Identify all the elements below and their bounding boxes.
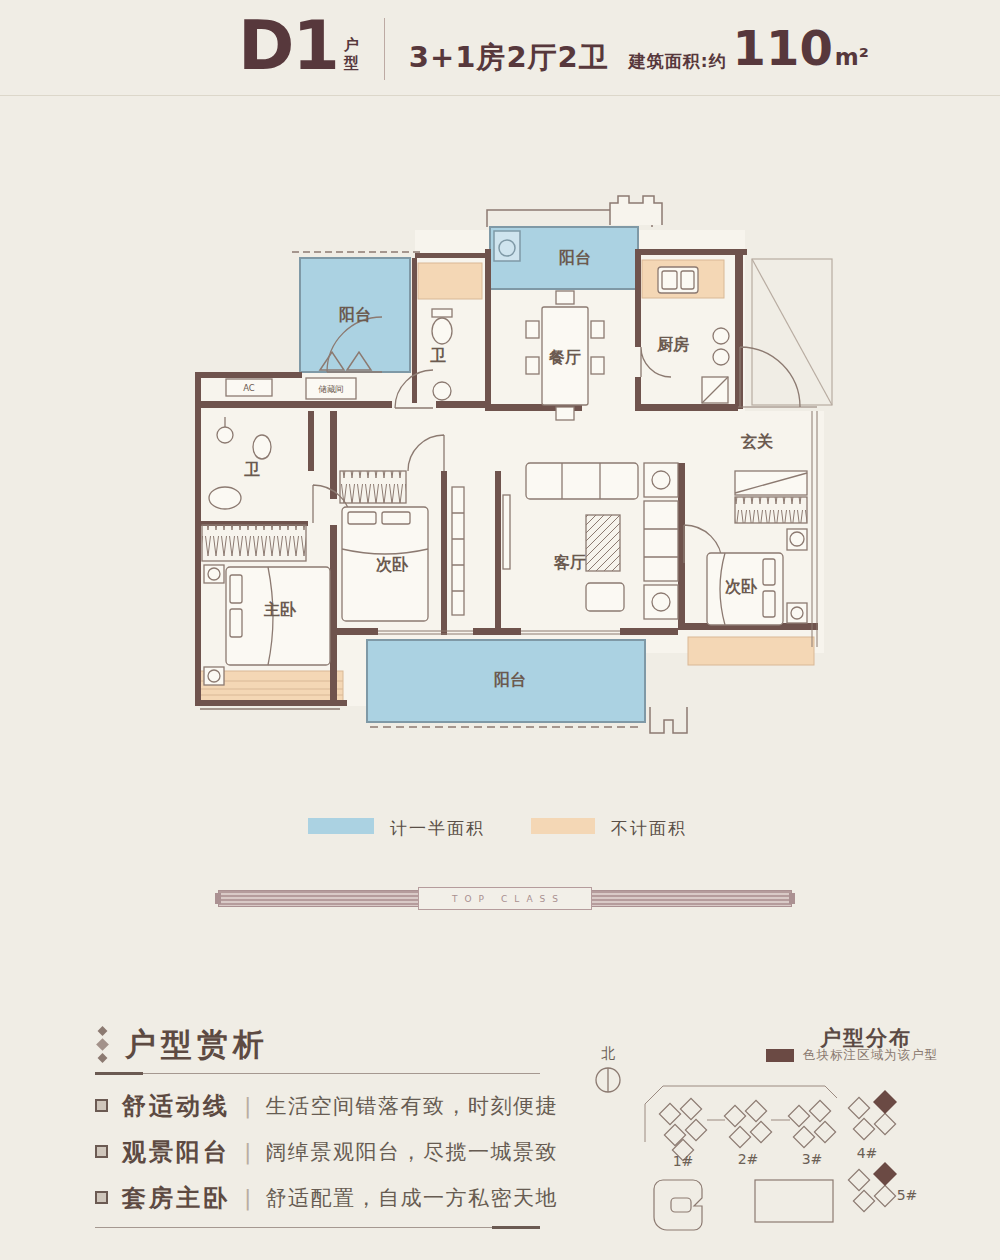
plan-code-suffix: 户型 (344, 36, 362, 72)
area-unit: m² (835, 44, 869, 70)
highlighted-unit (873, 1162, 897, 1186)
header-divider (384, 18, 385, 80)
building-cluster-5 (848, 1162, 897, 1212)
room-label-dining: 餐厅 (548, 348, 581, 367)
analysis-separator: | (244, 1093, 251, 1118)
analysis-term: 观景阳台 (122, 1136, 230, 1168)
building-cluster-1 (659, 1098, 706, 1160)
room-label-entry: 玄关 (740, 432, 773, 451)
building-cluster-4 (848, 1090, 897, 1140)
area-legend: 计一半面积 不计面积 (0, 815, 1000, 839)
compass-label: 北 (601, 1045, 615, 1061)
top-class-divider: TOP CLASS (218, 890, 792, 907)
analysis-term: 舒适动线 (122, 1090, 230, 1122)
half-area-label: 计一半面积 (390, 817, 485, 840)
site-structures (654, 1180, 833, 1230)
building-label-4: 4# (857, 1145, 878, 1161)
analysis-item: 舒适动线 | 生活空间错落有致，时刻便捷 (95, 1090, 558, 1121)
not-counted-swatch (531, 818, 595, 834)
building-label-5: 5# (897, 1187, 918, 1203)
room-label-bedroom-mid: 次卧 (376, 555, 409, 574)
room-label-balcony-left: 阳台 (339, 305, 371, 324)
site-plan: 北 (585, 1040, 985, 1240)
area-label: 建筑面积:约 (629, 50, 727, 73)
room-label-living: 客厅 (553, 553, 586, 572)
analysis-rule-top (95, 1072, 540, 1075)
exterior-outline (752, 259, 832, 405)
floorplan: 阳台 阳台 阳台 卫 卫 餐厅 厨房 玄关 储藏间 AC 次卧 次卧 主卧 客厅 (180, 195, 860, 755)
header-rule (0, 95, 1000, 96)
building-cluster-2 (724, 1100, 771, 1147)
top-class-label: TOP CLASS (445, 894, 565, 904)
analysis-desc: 生活空间错落有致，时刻便捷 (265, 1092, 558, 1120)
room-label-master: 主卧 (263, 600, 297, 619)
analysis-items: 舒适动线 | 生活空间错落有致，时刻便捷 观景阳台 | 阔绰景观阳台，尽揽一城景… (95, 1090, 558, 1228)
analysis-title: 户型赏析 (125, 1024, 269, 1066)
analysis-rule-bottom (95, 1226, 540, 1229)
header: D1 户型 3+1房2厅2卫 建筑面积:约 110 m² (238, 10, 869, 81)
poster-canvas: D1 户型 3+1房2厅2卫 建筑面积:约 110 m² (0, 0, 1000, 1260)
analysis-separator: | (244, 1185, 251, 1210)
compass-icon: 北 (596, 1045, 620, 1092)
diamond-stack-icon (95, 1025, 111, 1065)
room-label-ac: AC (243, 383, 255, 393)
building-label-1: 1# (673, 1153, 694, 1169)
building-cluster-3 (788, 1100, 835, 1147)
square-bullet-icon (95, 1191, 108, 1204)
building-label-2: 2# (738, 1151, 759, 1167)
analysis-desc: 舒适配置，自成一方私密天地 (265, 1184, 558, 1212)
square-bullet-icon (95, 1145, 108, 1158)
analysis-desc: 阔绰景观阳台，尽揽一城景致 (265, 1138, 558, 1166)
room-label-balcony-top: 阳台 (559, 248, 591, 267)
not-counted-label: 不计面积 (611, 817, 687, 840)
analysis-item: 套房主卧 | 舒适配置，自成一方私密天地 (95, 1182, 558, 1213)
plan-code: D1 (238, 10, 338, 81)
area-value: 110 (733, 24, 833, 72)
room-label-balcony-bottom: 阳台 (494, 670, 526, 689)
highlighted-unit (873, 1090, 897, 1114)
room-label-bedroom-right: 次卧 (725, 577, 758, 596)
room-label-storage: 储藏间 (318, 384, 344, 394)
room-label-bath-upper: 卫 (430, 346, 446, 365)
top-class-box: TOP CLASS (418, 887, 592, 910)
analysis-separator: | (244, 1139, 251, 1164)
building-label-3: 3# (802, 1151, 823, 1167)
square-bullet-icon (95, 1099, 108, 1112)
room-label-bath-lower: 卫 (244, 460, 260, 479)
layout-summary: 3+1房2厅2卫 (409, 38, 609, 78)
analysis-item: 观景阳台 | 阔绰景观阳台，尽揽一城景致 (95, 1136, 558, 1167)
half-area-swatch (308, 818, 374, 834)
analysis-term: 套房主卧 (122, 1182, 230, 1214)
room-label-kitchen: 厨房 (656, 335, 689, 354)
